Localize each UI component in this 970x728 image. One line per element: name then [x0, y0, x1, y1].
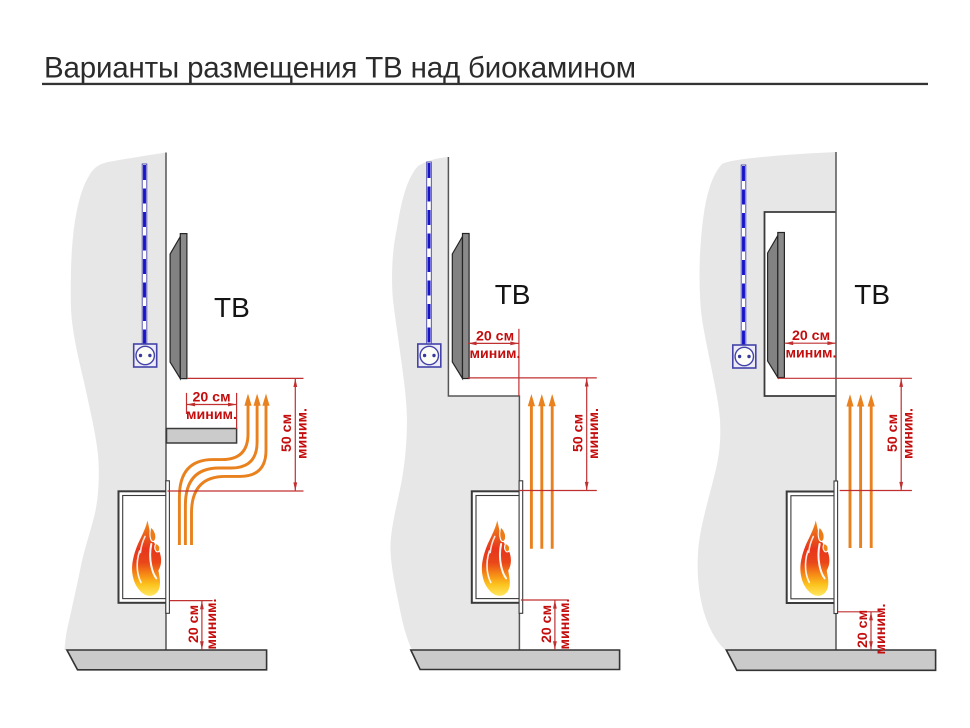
svg-text:миним.: миним.	[586, 408, 602, 459]
svg-text:миним.: миним.	[901, 408, 917, 459]
svg-text:миним.: миним.	[295, 408, 311, 459]
svg-text:20 см: 20 см	[186, 605, 202, 643]
svg-text:50 см: 50 см	[570, 414, 586, 452]
svg-text:ТВ: ТВ	[495, 279, 531, 310]
svg-text:20 см: 20 см	[539, 605, 555, 643]
svg-text:50 см: 50 см	[885, 414, 901, 452]
svg-text:миним.: миним.	[873, 604, 889, 655]
svg-text:Варианты размещения ТВ над био: Варианты размещения ТВ над биокамином	[44, 52, 636, 85]
svg-text:миним.: миним.	[204, 599, 220, 650]
svg-text:50 см: 50 см	[279, 414, 295, 452]
svg-text:ТВ: ТВ	[854, 279, 890, 310]
svg-text:20 см: 20 см	[855, 610, 871, 648]
svg-text:миним.: миним.	[557, 599, 573, 650]
svg-text:ТВ: ТВ	[214, 292, 250, 323]
